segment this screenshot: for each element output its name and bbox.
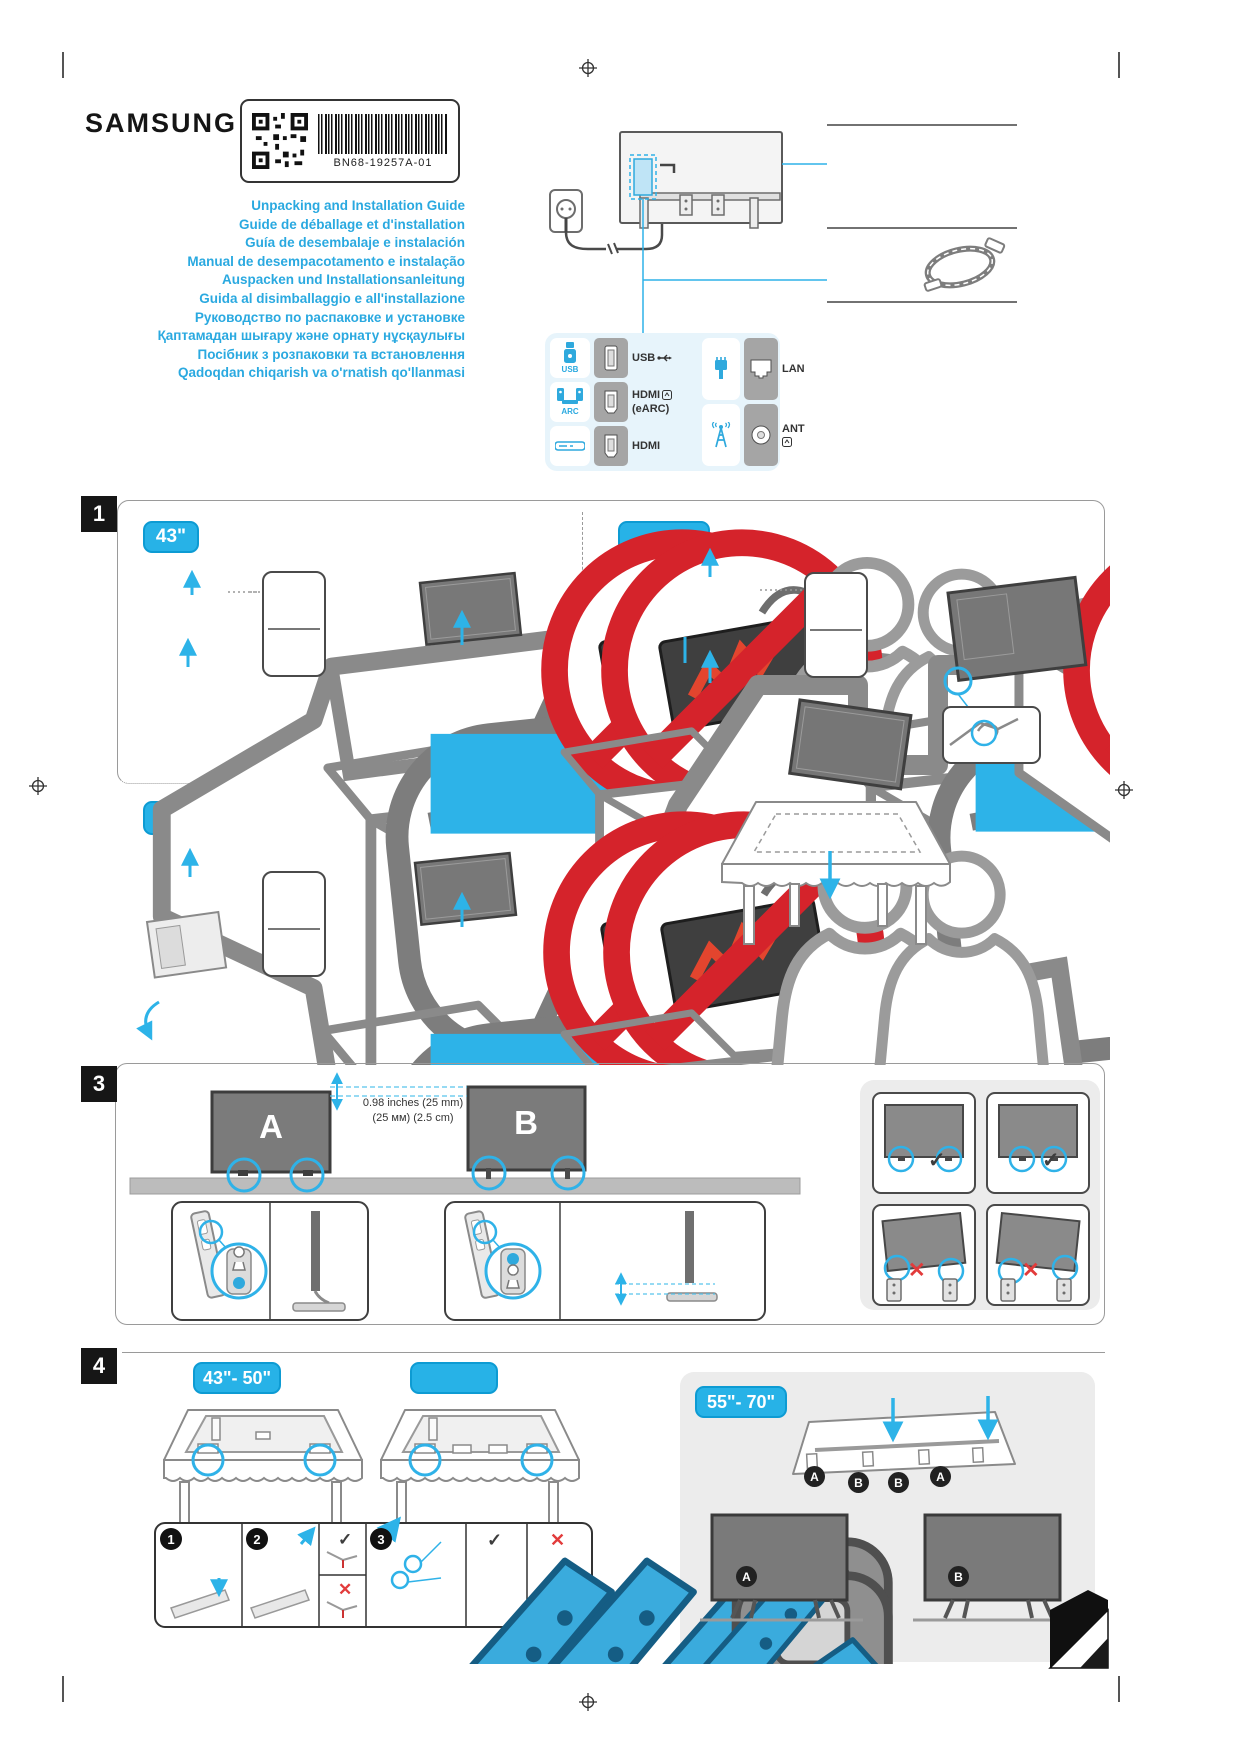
port-area-highlight xyxy=(634,159,652,195)
cross-mark: ✕ xyxy=(550,1530,565,1551)
step-3-number: 3 xyxy=(370,1528,392,1550)
title-line: Qadoqdan chiqarish va o'rnatish qo'llanm… xyxy=(85,364,465,383)
stand-detail-panel-b xyxy=(445,1202,765,1320)
hdmi-port-icon xyxy=(603,433,619,459)
usb-device-cell: USB xyxy=(550,338,590,378)
marker-a1: A xyxy=(804,1466,825,1487)
lan-device-cell xyxy=(702,338,740,400)
lan-text: LAN xyxy=(782,363,805,375)
hdmi-port-cell xyxy=(594,426,628,466)
earc-badge-icon xyxy=(662,390,672,400)
marker-b2: B xyxy=(888,1472,909,1493)
arc-speakers-icon xyxy=(557,388,583,406)
arc-device-cell: ARC xyxy=(550,382,590,422)
ant-device-cell xyxy=(702,404,740,466)
port-row-hdmi-earc: ARC HDMI (eARC) xyxy=(550,382,696,422)
onecable-device-cell xyxy=(550,426,590,466)
port-row-usb: USB USB xyxy=(550,338,696,378)
usb-trident-icon xyxy=(657,353,673,363)
tv-a-label: A xyxy=(249,1108,293,1146)
registration-crosshair-icon xyxy=(578,1692,598,1712)
tv-variant-b-label: B xyxy=(948,1566,969,1587)
level-check-panel xyxy=(860,1080,1100,1310)
part-code: BN68-19257A-01 xyxy=(318,157,448,169)
title-line: Auspacken und Installationsanleitung xyxy=(85,271,465,290)
gap-measurement-line1: 0.98 inches (25 mm) xyxy=(338,1096,488,1111)
title-line: Guía de desembalaje e instalación xyxy=(85,234,465,253)
usb-stick-icon xyxy=(563,342,577,364)
registration-crosshair-icon xyxy=(578,58,598,78)
marker-b1: B xyxy=(848,1472,869,1493)
step-2-number: 2 xyxy=(246,1528,268,1550)
multilingual-titles: Unpacking and Installation Guide Guide d… xyxy=(85,197,465,383)
barcode-block: BN68-19257A-01 xyxy=(318,114,448,169)
title-line: Guide de déballage et d'installation xyxy=(85,216,465,235)
gap-measurement: 0.98 inches (25 mm) (25 мм) (2.5 cm) xyxy=(338,1096,488,1125)
tv-back xyxy=(620,132,782,228)
usb-port-icon xyxy=(604,345,618,371)
ports-column-left: USB USB ARC HDMI xyxy=(550,338,696,466)
cross-mark: ✕ xyxy=(338,1580,352,1600)
arc-cell-label: ARC xyxy=(561,407,578,416)
stand-table-large xyxy=(381,1410,579,1532)
power-cable-accessory xyxy=(924,238,1005,292)
section4-illustrations xyxy=(115,1352,1105,1664)
hdmi-earc-text2: (eARC) xyxy=(632,403,669,415)
section4-badge: 4 xyxy=(81,1348,117,1384)
lan-plug-icon xyxy=(713,357,729,381)
marker-a2: A xyxy=(930,1466,951,1487)
ports-panel: USB USB ARC HDMI xyxy=(545,333,780,471)
lan-port-icon xyxy=(750,359,772,379)
port-row-ant: ANT xyxy=(702,404,816,466)
cross-mark: ✕ xyxy=(1022,1258,1040,1283)
usb-port-cell xyxy=(594,338,628,378)
port-row-hdmi: HDMI xyxy=(550,426,696,466)
usb-cell-label: USB xyxy=(562,365,579,374)
crop-mark-bottom-right xyxy=(1118,1676,1120,1702)
step-1-number: 1 xyxy=(160,1528,182,1550)
usb-port-label: USB xyxy=(632,352,696,364)
hdmi-port-icon xyxy=(603,389,619,415)
title-line: Manual de desempacotamento e instalação xyxy=(85,253,465,272)
check-mark: ✓ xyxy=(928,1148,946,1173)
ant-text: ANT xyxy=(782,423,805,435)
gap-measurement-line2: (25 мм) (2.5 cm) xyxy=(338,1111,488,1126)
tv-back-diagram xyxy=(540,95,1030,340)
cross-mark: ✕ xyxy=(908,1258,926,1283)
registration-crosshair-icon xyxy=(28,776,48,796)
title-line: Руководство по распаковке и установке xyxy=(85,309,465,328)
manual-page: SAMSUNG BN68-19257A-01 Unpacking and Ins… xyxy=(0,0,1241,1754)
wall-outlet xyxy=(550,190,582,232)
usb-port-text: USB xyxy=(632,352,655,364)
hdmi-text: HDMI xyxy=(632,440,660,452)
tv-b-label: B xyxy=(504,1104,548,1142)
check-mark: ✓ xyxy=(487,1530,502,1551)
stand-table-small xyxy=(164,1410,362,1532)
ant-port-cell xyxy=(744,404,778,466)
crop-mark-top-right xyxy=(1118,52,1120,78)
ports-column-right: LAN ANT xyxy=(702,338,816,466)
port-row-lan: LAN xyxy=(702,338,816,400)
barcode xyxy=(318,114,448,154)
title-line: Посібник з розпаковки та встановлення xyxy=(85,346,465,365)
grip-detail xyxy=(943,707,1040,763)
device-bar-icon xyxy=(555,441,585,451)
title-line: Guida al disimballaggio e all'installazi… xyxy=(85,290,465,309)
coax-port-icon xyxy=(750,424,772,446)
check-mark: ✓ xyxy=(1042,1148,1060,1173)
registration-crosshair-icon xyxy=(1114,780,1134,800)
tv-variant-a-label: A xyxy=(736,1566,757,1587)
qr-code xyxy=(252,112,308,170)
title-line: Unpacking and Installation Guide xyxy=(85,197,465,216)
hdmi-earc-text1: HDMI xyxy=(632,389,660,401)
samsung-logo: SAMSUNG xyxy=(85,108,237,139)
page-turn-icon xyxy=(1046,1588,1112,1672)
ant-label: ANT xyxy=(782,423,816,447)
section3-illustrations xyxy=(115,1063,1105,1325)
crop-mark-top-left xyxy=(62,52,64,78)
hdmi-earc-label: HDMI (eARC) xyxy=(632,389,696,415)
check-mark: ✓ xyxy=(338,1530,352,1550)
part-label-sticker: BN68-19257A-01 xyxy=(240,99,460,183)
lan-label: LAN xyxy=(782,363,816,375)
crop-mark-bottom-left xyxy=(62,1676,64,1702)
section3-badge: 3 xyxy=(81,1066,117,1102)
hdmi-label: HDMI xyxy=(632,440,696,452)
hdmi-earc-port-cell xyxy=(594,382,628,422)
ant-badge-icon xyxy=(782,437,792,447)
title-line: Қаптамадан шығару және орнату нұсқаулығы xyxy=(85,327,465,346)
stand-detail-panel-a xyxy=(172,1202,368,1320)
section1-2-illustrations xyxy=(110,495,1110,1065)
antenna-icon xyxy=(710,422,732,448)
lan-port-cell xyxy=(744,338,778,400)
